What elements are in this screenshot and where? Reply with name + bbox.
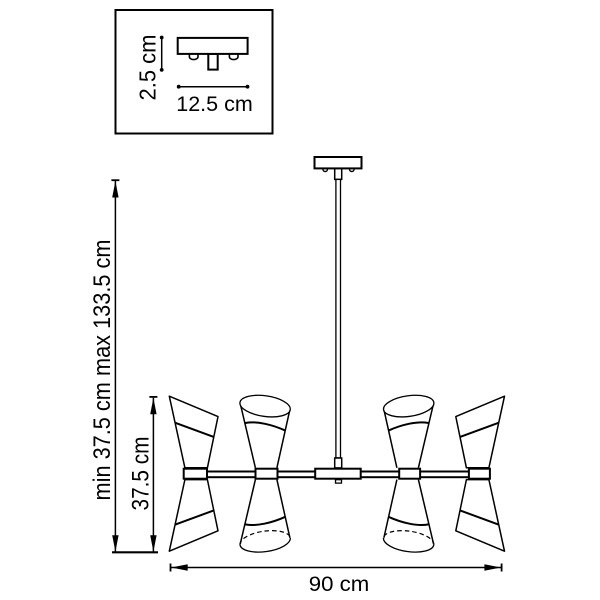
svg-text:min 37.5 cm max 133.5 cm: min 37.5 cm max 133.5 cm xyxy=(89,240,116,501)
svg-text:90 cm: 90 cm xyxy=(309,573,370,596)
svg-text:12.5 cm: 12.5 cm xyxy=(176,93,253,116)
svg-text:37.5 cm: 37.5 cm xyxy=(127,437,154,511)
svg-text:2.5 cm: 2.5 cm xyxy=(134,35,160,101)
